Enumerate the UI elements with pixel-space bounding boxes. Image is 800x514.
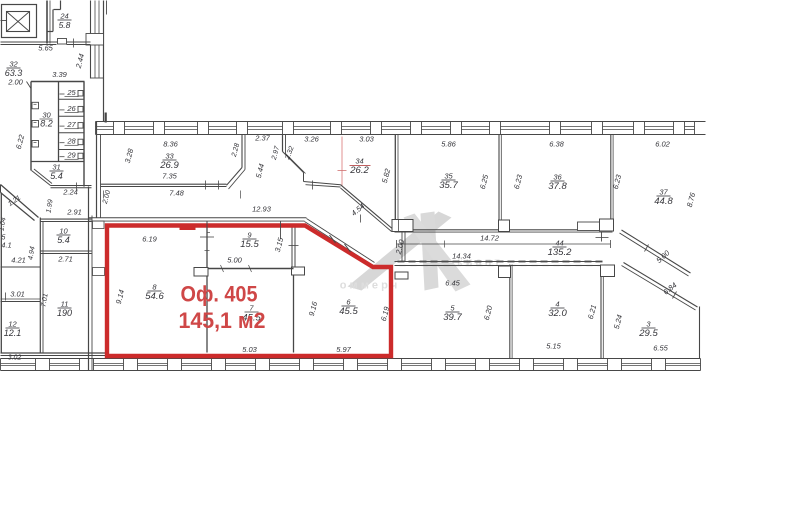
svg-text:3.26: 3.26: [304, 135, 319, 144]
svg-text:5.86: 5.86: [441, 140, 456, 149]
svg-text:4.1: 4.1: [1, 241, 11, 250]
svg-text:15.5: 15.5: [240, 239, 259, 250]
svg-text:12.93: 12.93: [252, 205, 272, 214]
svg-text:14.34: 14.34: [452, 252, 471, 261]
svg-text:8.2: 8.2: [40, 119, 53, 129]
svg-text:26.2: 26.2: [349, 165, 369, 176]
svg-text:5.4: 5.4: [57, 235, 70, 245]
svg-text:39.7: 39.7: [443, 312, 462, 323]
svg-text:3.03: 3.03: [359, 135, 374, 144]
svg-text:7.48: 7.48: [169, 189, 184, 198]
svg-text:145,1 м2: 145,1 м2: [179, 308, 266, 333]
svg-text:190: 190: [57, 308, 72, 318]
svg-text:6.38: 6.38: [549, 140, 564, 149]
svg-text:12.1: 12.1: [4, 328, 22, 338]
svg-text:5.00: 5.00: [227, 256, 242, 265]
svg-text:29: 29: [66, 151, 76, 160]
svg-text:5.4: 5.4: [50, 171, 63, 181]
svg-text:7.35: 7.35: [162, 172, 177, 181]
svg-text:5.03: 5.03: [242, 345, 257, 354]
svg-text:35.7: 35.7: [439, 180, 458, 191]
svg-text:6.55: 6.55: [653, 344, 668, 353]
svg-text:26.9: 26.9: [159, 160, 179, 171]
svg-text:29.5: 29.5: [638, 328, 658, 339]
svg-text:2.24: 2.24: [62, 188, 78, 197]
svg-text:26: 26: [66, 104, 76, 113]
svg-text:3.01: 3.01: [10, 290, 25, 299]
svg-text:45.5: 45.5: [339, 306, 358, 317]
svg-text:5.65: 5.65: [38, 44, 53, 53]
svg-text:5.15: 5.15: [546, 342, 561, 351]
svg-text:27: 27: [66, 120, 76, 129]
svg-text:14.72: 14.72: [480, 234, 500, 243]
svg-text:63.3: 63.3: [5, 68, 23, 78]
svg-text:5.8: 5.8: [59, 20, 71, 30]
svg-text:32.0: 32.0: [548, 308, 567, 319]
svg-text:о м м е р ч: о м м е р ч: [340, 280, 398, 292]
svg-text:3.02: 3.02: [8, 355, 22, 362]
svg-text:25: 25: [66, 88, 76, 97]
svg-text:2.37: 2.37: [254, 134, 270, 143]
svg-text:2.00: 2.00: [7, 78, 23, 87]
svg-text:3.39: 3.39: [52, 70, 67, 79]
svg-text:6.02: 6.02: [655, 140, 670, 149]
svg-text:44.8: 44.8: [654, 196, 673, 207]
svg-text:2.91: 2.91: [66, 208, 82, 217]
svg-text:8.36: 8.36: [163, 140, 178, 149]
svg-text:28: 28: [66, 137, 76, 146]
svg-text:135.2: 135.2: [548, 247, 572, 258]
svg-text:6.45: 6.45: [445, 279, 460, 288]
svg-text:37.8: 37.8: [548, 181, 567, 192]
svg-text:2.71: 2.71: [57, 255, 73, 264]
svg-text:6.19: 6.19: [142, 235, 157, 244]
svg-text:5.97: 5.97: [336, 345, 351, 354]
svg-text:4.21: 4.21: [11, 256, 26, 265]
svg-text:Оф. 405: Оф. 405: [181, 282, 258, 307]
svg-text:54.6: 54.6: [145, 291, 164, 302]
